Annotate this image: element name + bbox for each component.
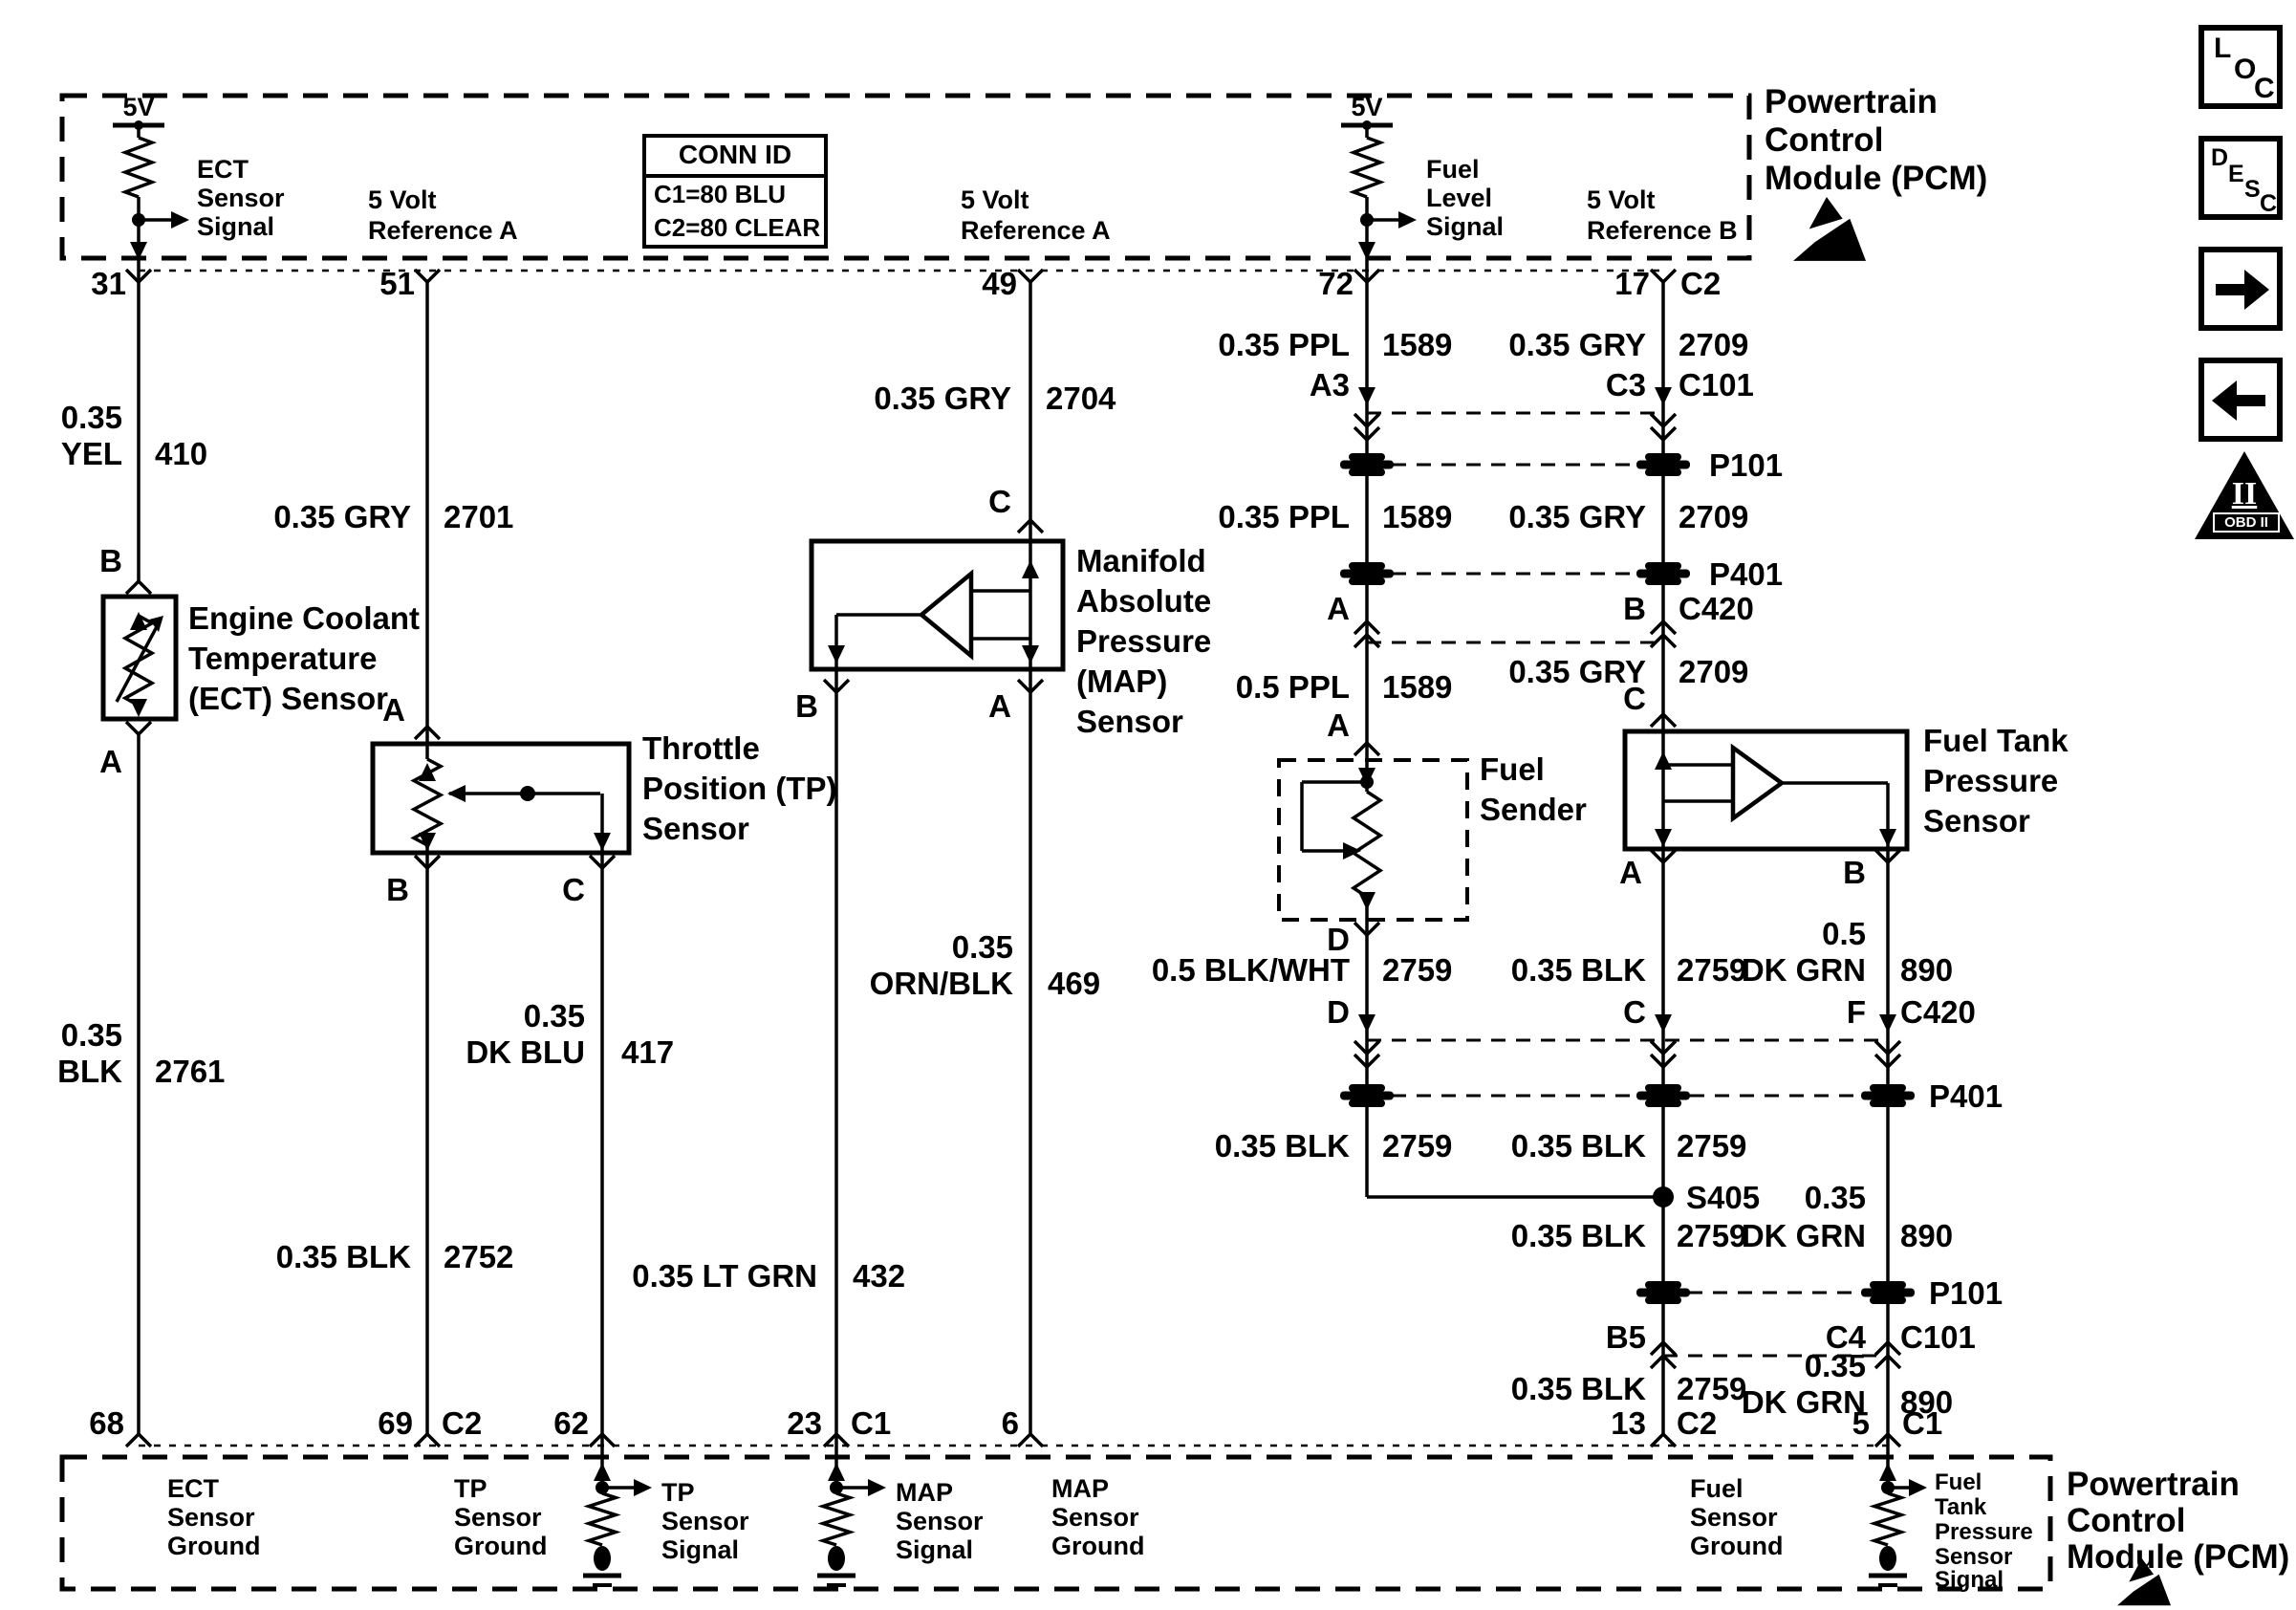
w2709a-spec: 0.35 GRY (1508, 327, 1646, 362)
conn-id-title: CONN ID (646, 138, 824, 178)
connector-chevron (126, 722, 151, 734)
sig-tp-1: TP (661, 1478, 695, 1507)
w410-color: YEL (61, 436, 122, 471)
gnd-tp-3: Ground (454, 1532, 547, 1560)
grommet-icon (1645, 1281, 1681, 1289)
splice-s405-dot (1653, 1186, 1674, 1207)
ground-icon (594, 1546, 611, 1571)
pin-23: 23 (787, 1405, 822, 1441)
grommet-icon (1870, 1281, 1906, 1289)
ground-icon (828, 1546, 845, 1571)
map-name-1: Manifold (1076, 543, 1206, 578)
junction-dot (134, 120, 143, 130)
gnd-map-1: MAP (1051, 1474, 1109, 1503)
tp-name-1: Throttle (642, 730, 760, 766)
pin-17: 17 (1614, 266, 1650, 301)
forward-button[interactable] (2199, 247, 2283, 331)
desc-letter-e: E (2228, 161, 2244, 188)
w2704-ckt: 2704 (1046, 381, 1116, 416)
sig-map-3: Signal (896, 1535, 973, 1564)
w890c-size: 0.35 (1805, 1348, 1866, 1383)
ref-a2-l1: 5 Volt (961, 185, 1029, 214)
w2759c-ckt: 2759 (1382, 1128, 1452, 1164)
ftp-name-2: Pressure (1923, 763, 2058, 798)
junction-dot (520, 786, 535, 801)
arrowhead-icon (1358, 387, 1375, 405)
desc-letter-d: D (2211, 144, 2228, 172)
w890a-size: 0.5 (1822, 916, 1866, 951)
map-pin-b: B (795, 688, 818, 724)
grommet-icon (1870, 1084, 1906, 1092)
ref-b-l1: 5 Volt (1587, 185, 1656, 214)
ftp-pin-a: A (1619, 855, 1642, 890)
grommet-icon (1870, 1099, 1906, 1107)
w2759e-ckt: 2759 (1677, 1218, 1746, 1253)
ftp-amplifier (1733, 748, 1782, 818)
resistor (1354, 138, 1380, 197)
esd-sensitive-icon (1809, 197, 1843, 228)
sig-ftp-4: Sensor (1935, 1544, 2012, 1570)
w2759d-spec: 0.35 BLK (1511, 1128, 1646, 1164)
resistor (589, 1493, 616, 1545)
gnd-fuel-2: Sensor (1690, 1503, 1778, 1532)
pcm-top-l2: Control (1765, 121, 1883, 159)
pin-31: 31 (91, 266, 126, 301)
w469-ckt: 469 (1048, 966, 1100, 1001)
arrowhead-icon (1655, 751, 1672, 770)
arrowhead-icon (1655, 387, 1672, 405)
obd2-button[interactable]: II OBD II (2195, 451, 2294, 539)
conn-p101a: P101 (1709, 447, 1783, 483)
c420b-pin-f: F (1847, 994, 1866, 1030)
conn-p401b: P401 (1929, 1078, 2003, 1114)
tp-pin-c: C (562, 872, 585, 907)
arrowhead-icon (1655, 829, 1672, 847)
ground-icon (1879, 1546, 1896, 1571)
w469-size: 0.35 (952, 929, 1013, 965)
w2759b-ckt: 2759 (1677, 952, 1746, 988)
conn-id-row-c1: C1=80 BLU (646, 178, 824, 211)
forward-arrow-icon (2216, 284, 2244, 295)
grommet-icon (1645, 453, 1681, 461)
w890b-size: 0.35 (1805, 1180, 1866, 1215)
w890c-color: DK GRN (1742, 1384, 1866, 1420)
grommet-icon (1645, 1296, 1681, 1304)
c420a-pin-b: B (1623, 591, 1646, 626)
grommet-icon (1645, 562, 1681, 570)
conn-id-row-c2: C2=80 CLEAR (646, 211, 824, 245)
gnd-map-3: Ground (1051, 1532, 1144, 1560)
sig-fuel-1: Fuel (1426, 155, 1480, 184)
conn-c3: C3 (1606, 367, 1646, 402)
tp-pin-b: B (386, 872, 409, 907)
grommet-icon (1340, 1092, 1394, 1100)
w2709c-ckt: 2709 (1679, 654, 1748, 689)
conn-c420a: C420 (1679, 591, 1754, 626)
w1589a-ckt: 1589 (1382, 327, 1452, 362)
gnd-ect-1: ECT (167, 1474, 220, 1503)
loc-letter-l: L (2214, 33, 2231, 65)
esd-sensitive-icon (2117, 1575, 2171, 1605)
sig-map-1: MAP (896, 1478, 953, 1507)
sig-ftp-1: Fuel (1935, 1469, 1982, 1495)
tp-name-2: Position (TP) (642, 771, 836, 806)
loc-button[interactable]: L O C (2199, 25, 2283, 109)
grommet-icon (1636, 461, 1690, 469)
grommet-icon (1861, 1289, 1915, 1297)
pcm-top-l1: Powertrain (1765, 83, 1938, 120)
ref-a1-l2: Reference A (368, 216, 518, 245)
supply-5v-ect: 5V (122, 93, 154, 121)
arrowhead-icon (594, 1463, 611, 1481)
grommet-icon (1636, 1092, 1690, 1100)
w890a-ckt: 890 (1900, 952, 1953, 988)
w417-color: DK BLU (466, 1034, 585, 1070)
ref-a1-l1: 5 Volt (368, 185, 437, 214)
connector-chevron (1651, 270, 1676, 282)
w2761-size: 0.35 (61, 1017, 122, 1053)
ref-a2-l2: Reference A (961, 216, 1111, 245)
grommet-icon (1645, 1084, 1681, 1092)
ect-name-3: (ECT) Sensor (188, 681, 388, 716)
pin-72: 72 (1318, 266, 1354, 301)
pin-13-conn: C2 (1677, 1405, 1717, 1441)
arrowhead-icon (1879, 829, 1896, 847)
ect-pin-b: B (99, 543, 122, 578)
grommet-icon (1349, 453, 1385, 461)
sig-ftp-5: Signal (1935, 1567, 2004, 1593)
desc-button[interactable]: D E S C (2199, 136, 2283, 220)
junction-dot (132, 213, 145, 227)
w890b-ckt: 890 (1900, 1218, 1953, 1253)
w1589c-spec: 0.5 PPL (1236, 669, 1350, 705)
arrowhead-icon (828, 645, 845, 664)
w2709b-ckt: 2709 (1679, 499, 1748, 534)
conn-c101b: C101 (1900, 1319, 1976, 1355)
c420b-pin-d: D (1327, 994, 1350, 1030)
pin-62: 62 (553, 1405, 589, 1441)
w2759a-ckt: 2759 (1382, 952, 1452, 988)
pin-69: 69 (378, 1405, 413, 1441)
resistor (1354, 792, 1380, 897)
obd2-numeral: II (2195, 476, 2294, 512)
w890b-color: DK GRN (1742, 1218, 1866, 1253)
wiring-diagram-page: 5VECTSensorSignal5 VoltReference A5 Volt… (0, 0, 2296, 1610)
c420b-pin-c: C (1623, 994, 1646, 1030)
desc-letter-c: C (2260, 190, 2277, 218)
connector-chevron (1651, 1434, 1676, 1447)
sig-ect-1: ECT (197, 155, 249, 184)
w2752-spec: 0.35 BLK (276, 1239, 411, 1274)
w2701-ckt: 2701 (444, 499, 513, 534)
grommet-icon (1645, 577, 1681, 585)
grommet-icon (1349, 1084, 1385, 1092)
junction-dot (830, 1481, 843, 1494)
pin-5: 5 (1852, 1405, 1870, 1441)
sender-pin-a: A (1327, 707, 1350, 743)
gnd-map-2: Sensor (1051, 1503, 1139, 1532)
sig-ect-2: Sensor (197, 184, 285, 212)
grommet-icon (1349, 562, 1385, 570)
tp-name-3: Sensor (642, 811, 749, 846)
grommet-icon (1636, 570, 1690, 578)
ect-name-1: Engine Coolant (188, 600, 420, 636)
conn-p401a: P401 (1709, 556, 1783, 592)
w2704-spec: 0.35 GRY (874, 381, 1011, 416)
gnd-ect-3: Ground (167, 1532, 260, 1560)
w2759d-ckt: 2759 (1677, 1128, 1746, 1164)
arrowhead-icon (1398, 211, 1417, 228)
w2759f-ckt: 2759 (1677, 1371, 1746, 1406)
pcm-bot-l2: Control (2067, 1502, 2185, 1539)
sig-ftp-2: Tank (1935, 1494, 1987, 1520)
sig-ect-3: Signal (197, 212, 274, 241)
grommet-icon (1645, 1099, 1681, 1107)
c101b-pin-b5: B5 (1606, 1319, 1646, 1355)
arrowhead-icon (828, 1463, 845, 1481)
gnd-tp-2: Sensor (454, 1503, 542, 1532)
pcm-bot-l1: Powertrain (2067, 1466, 2240, 1503)
w2701-spec: 0.35 GRY (273, 499, 411, 534)
conn-a3: A3 (1310, 367, 1350, 402)
arrowhead-icon (594, 833, 611, 851)
desc-letter-s: S (2244, 176, 2261, 204)
sig-map-2: Sensor (896, 1507, 984, 1535)
sig-tp-2: Sensor (661, 1507, 749, 1535)
sig-tp-3: Signal (661, 1535, 739, 1564)
w1589c-ckt: 1589 (1382, 669, 1452, 705)
pin-69-conn: C2 (442, 1405, 482, 1441)
junction-dot (1362, 120, 1372, 130)
esd-sensitive-icon (1793, 219, 1866, 261)
pin-13: 13 (1611, 1405, 1646, 1441)
tp-sensor-box (373, 744, 629, 853)
ect-pin-a: A (99, 744, 122, 779)
loc-letter-c: C (2254, 73, 2275, 105)
grommet-icon (1340, 461, 1394, 469)
w410-ckt: 410 (155, 436, 207, 471)
map-name-2: Absolute (1076, 583, 1211, 619)
w1589a-spec: 0.35 PPL (1218, 327, 1350, 362)
connector-chevron (415, 1434, 440, 1447)
w417-ckt: 417 (621, 1034, 674, 1070)
resistor (823, 1493, 850, 1545)
sig-fuel-3: Signal (1426, 212, 1504, 241)
schematic-canvas: 5VECTSensorSignal5 VoltReference A5 Volt… (0, 0, 2296, 1610)
sig-ftp-3: Pressure (1935, 1519, 2033, 1545)
w2752-ckt: 2752 (444, 1239, 513, 1274)
resistor (1874, 1493, 1901, 1545)
ftp-pin-b: B (1843, 855, 1866, 890)
w432-ckt: 432 (853, 1258, 905, 1294)
supply-5v-fuel: 5V (1351, 93, 1382, 121)
pin-6: 6 (1002, 1405, 1019, 1441)
grommet-icon (1645, 468, 1681, 476)
sender-name-2: Sender (1480, 792, 1587, 827)
arrowhead-icon (171, 211, 189, 228)
w2761-color: BLK (57, 1054, 122, 1089)
map-name-4: (MAP) (1076, 664, 1167, 699)
grommet-icon (1870, 1296, 1906, 1304)
grommet-icon (1349, 468, 1385, 476)
pin-68: 68 (89, 1405, 124, 1441)
conn-c101a: C101 (1679, 367, 1754, 402)
pin-23-conn: C1 (851, 1405, 891, 1441)
w2759a-spec: 0.5 BLK/WHT (1152, 952, 1350, 988)
conn-c420b: C420 (1900, 994, 1976, 1030)
arrowhead-icon (1879, 1463, 1896, 1481)
gnd-fuel-3: Ground (1690, 1532, 1783, 1560)
pin-51: 51 (379, 266, 415, 301)
map-pin-a: A (988, 688, 1011, 724)
back-arrow-icon (2212, 381, 2237, 421)
w2709b-spec: 0.35 GRY (1508, 499, 1646, 534)
conn-p101b: P101 (1929, 1275, 2003, 1311)
sig-fuel-2: Level (1426, 184, 1492, 212)
grommet-icon (1340, 570, 1394, 578)
ref-b-l2: Reference B (1587, 216, 1738, 245)
c420a-pin-a: A (1327, 591, 1350, 626)
ftp-pin-c: C (1623, 681, 1646, 716)
map-pin-c: C (988, 484, 1011, 519)
gnd-ect-2: Sensor (167, 1503, 255, 1532)
ect-name-2: Temperature (188, 641, 377, 676)
pin-5-conn: C1 (1902, 1405, 1942, 1441)
w410-size: 0.35 (61, 400, 122, 435)
resistor (125, 138, 152, 197)
arrowhead-icon (1879, 1014, 1896, 1033)
map-amplifier (921, 574, 971, 656)
arrowhead-icon (1022, 645, 1039, 664)
w2759c-spec: 0.35 BLK (1215, 1128, 1350, 1164)
w2761-ckt: 2761 (155, 1054, 225, 1089)
map-name-5: Sensor (1076, 704, 1183, 739)
pcm-top-l3: Module (PCM) (1765, 160, 1987, 197)
arrowhead-icon (1358, 892, 1375, 910)
pin-49: 49 (982, 266, 1017, 301)
grommet-icon (1349, 1099, 1385, 1107)
junction-dot (596, 1481, 609, 1494)
w1589b-ckt: 1589 (1382, 499, 1452, 534)
loc-letter-o: O (2234, 54, 2256, 86)
arrowhead-icon (447, 785, 466, 802)
map-name-3: Pressure (1076, 623, 1211, 659)
back-button[interactable] (2199, 358, 2283, 442)
w2759e-spec: 0.35 BLK (1511, 1218, 1646, 1253)
junction-dot (1881, 1481, 1895, 1494)
pin-17-conn: C2 (1680, 266, 1721, 301)
conn-id-box: CONN ID C1=80 BLU C2=80 CLEAR (642, 134, 828, 249)
w2759b-spec: 0.35 BLK (1511, 952, 1646, 988)
connector-chevron (415, 270, 440, 282)
arrowhead-icon (1022, 560, 1039, 578)
ftp-name-1: Fuel Tank (1923, 723, 2069, 758)
gnd-fuel-1: Fuel (1690, 1474, 1744, 1503)
w2709a-ckt: 2709 (1679, 327, 1748, 362)
arrowhead-icon (868, 1479, 886, 1496)
w1589b-spec: 0.35 PPL (1218, 499, 1350, 534)
w417-size: 0.35 (524, 998, 585, 1033)
obd2-label: OBD II (2213, 512, 2280, 533)
grommet-icon (1861, 1092, 1915, 1100)
splice-s405: S405 (1686, 1180, 1760, 1215)
connector-chevron (126, 581, 151, 594)
sender-name-1: Fuel (1480, 751, 1545, 787)
w432-spec: 0.35 LT GRN (632, 1258, 817, 1294)
arrowhead-icon (130, 699, 147, 717)
arrowhead-icon (1358, 1014, 1375, 1033)
w890a-color: DK GRN (1742, 952, 1866, 988)
w469-color: ORN/BLK (870, 966, 1013, 1001)
arrowhead-icon (1655, 1014, 1672, 1033)
w2759f-spec: 0.35 BLK (1511, 1371, 1646, 1406)
ftp-name-3: Sensor (1923, 803, 2030, 838)
grommet-icon (1636, 1289, 1690, 1297)
arrowhead-icon (634, 1479, 652, 1496)
gnd-tp-1: TP (454, 1474, 487, 1503)
junction-dot (1360, 775, 1374, 789)
pcm-bot-l3: Module (PCM) (2067, 1538, 2289, 1576)
tp-pin-a: A (382, 692, 405, 728)
junction-dot (1360, 213, 1374, 227)
grommet-icon (1349, 577, 1385, 585)
arrowhead-icon (1909, 1479, 1927, 1496)
